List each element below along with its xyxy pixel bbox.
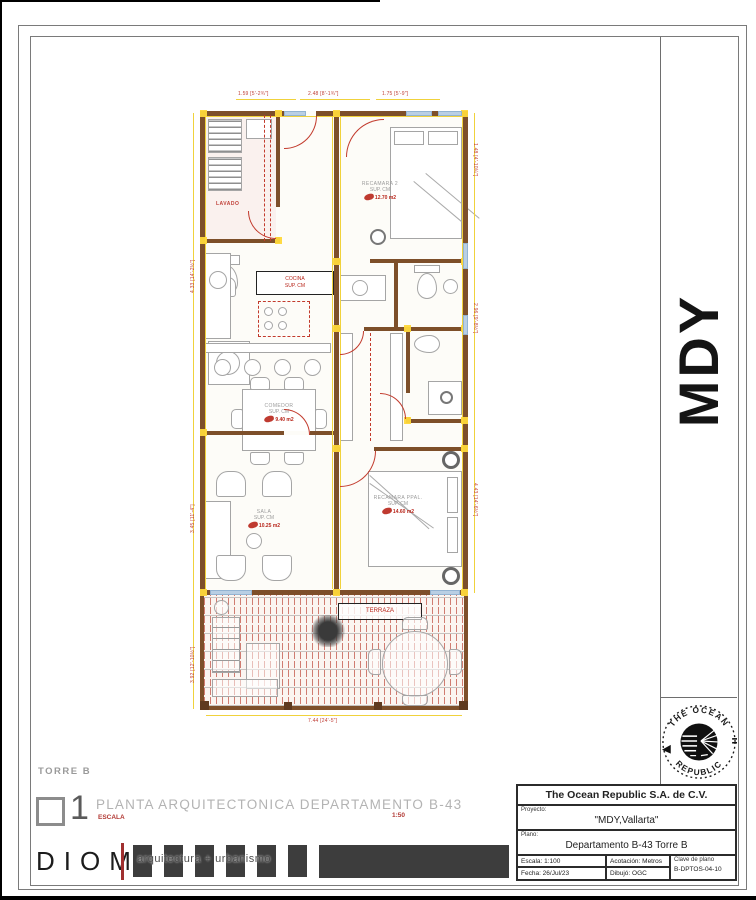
terrace-post — [284, 702, 292, 710]
yellow-joint — [200, 110, 207, 117]
window — [463, 315, 468, 335]
window — [406, 111, 432, 116]
fecha-cell: Fecha: 26/Jul/23 — [518, 868, 607, 879]
terrace-chair — [402, 617, 428, 630]
bath2b-tank — [414, 265, 440, 273]
clave-value: B-DPTOS-04-10 — [674, 866, 735, 873]
titleblock-proyecto-row: Proyecto: "MDY,Vallarta" — [518, 806, 735, 831]
plan-title: PLANTA ARQUITECTONICA DEPARTAMENTO B-43 — [96, 797, 462, 812]
door-gap — [276, 207, 280, 237]
titleblock-grid: Escala: 1:100 Fecha: 26/Jul/23 Acotación… — [518, 856, 735, 879]
dim-label: 4.43 [14'-6½"] — [472, 483, 478, 517]
title-block: The Ocean Republic S.A. de C.V. Proyecto… — [516, 784, 737, 881]
burner — [264, 307, 273, 316]
terrace-pot — [214, 600, 229, 615]
sliding-door — [210, 590, 252, 595]
washer — [208, 119, 242, 153]
wall-bath3-h — [406, 419, 468, 423]
proyecto-value: "MDY,Vallarta" — [518, 806, 735, 826]
yellow-line-inner-right — [462, 116, 463, 589]
sheet-number: 1 — [70, 789, 89, 828]
burner — [264, 321, 273, 330]
yellow-joint — [275, 110, 282, 117]
coffee-table — [246, 533, 262, 549]
wall-laundry-h — [200, 239, 280, 243]
terrace-post — [200, 701, 209, 710]
yellow-joint — [275, 237, 282, 244]
dim-label: 1.48 [4'-10¼"] — [472, 143, 478, 177]
escala-value: 1:50 — [392, 812, 405, 819]
yellow-joint — [333, 445, 340, 452]
nightstand-lamp — [442, 567, 460, 585]
bar-stool — [214, 359, 231, 376]
side-code-mdy: MDY — [666, 293, 731, 426]
ocean-republic-logo-icon: THE OCEAN REPUBLIC — [661, 699, 737, 783]
red-scribble-icon — [381, 507, 392, 515]
burner — [278, 307, 287, 316]
proyecto-label: Proyecto: — [521, 807, 546, 813]
titleblock-plano-row: Plano: Departamento B-43 Torre B — [518, 831, 735, 856]
dining-chair — [284, 452, 304, 465]
dining-chair — [250, 377, 270, 390]
bar-stool — [274, 359, 291, 376]
kitchen-note-box: COCINA SUP. CM — [256, 271, 334, 295]
yellow-joint — [404, 325, 411, 332]
titleblock-company-row: The Ocean Republic S.A. de C.V. — [518, 786, 735, 806]
dining-chair — [250, 452, 270, 465]
terrace-bench — [212, 679, 278, 697]
company-name: The Ocean Republic S.A. de C.V. — [546, 789, 708, 801]
yellow-line-inner-left — [205, 116, 206, 589]
yellow-joint — [333, 258, 340, 265]
laundry-counter — [246, 119, 272, 139]
floor-plan: COCINA SUP. CM COMEDOR SUP. CM 9.40 m2 S… — [200, 103, 470, 719]
red-scribble-icon — [247, 521, 258, 529]
sheet-number-box-icon — [36, 797, 65, 826]
bath2-sink — [352, 280, 368, 296]
yellow-joint — [200, 237, 207, 244]
page-edge-bottom — [0, 896, 756, 900]
wall-terrace-left — [200, 595, 204, 710]
plano-value: Departamento B-43 Torre B — [518, 831, 735, 851]
diom-wordmark: DIOM — [36, 846, 140, 877]
wall-bath1-h — [200, 431, 339, 435]
armchair — [216, 555, 246, 581]
yellow-joint — [333, 589, 340, 596]
terrace-label: TERRAZA — [339, 608, 421, 616]
dim-line-left — [193, 113, 194, 709]
red-dashed-line — [270, 115, 272, 241]
escala-label: ESCALA — [98, 814, 125, 821]
dim-label: 4.33 [14'-2½"] — [190, 259, 196, 293]
yellow-line-main-wall — [332, 116, 333, 589]
terrace-lounge — [212, 617, 240, 673]
burner — [278, 321, 287, 330]
closet — [390, 333, 403, 441]
diom-solid-block — [319, 845, 509, 878]
sliding-door — [430, 590, 460, 595]
terrace-chair — [402, 695, 428, 706]
room-tag-ppal: RECAMARA PPAL. SUP. CM 14.60 m2 — [346, 495, 450, 515]
dryer — [208, 157, 242, 191]
terrace-post — [459, 701, 468, 710]
dim-label: 3.45 [11'-4"] — [190, 504, 196, 533]
yellow-joint — [461, 110, 468, 117]
dim-label: 3.92 [12'-10½"] — [190, 646, 196, 683]
dim-line-top — [236, 99, 296, 100]
window — [438, 111, 462, 116]
room-label-lavado: LAVADO — [216, 201, 239, 207]
yellow-joint — [461, 589, 468, 596]
dim-label: 2.48 [8'-1¾"] — [308, 91, 339, 97]
room-tag-recamara2: RECAMARA 2 SUP. CM 12.70 m2 — [338, 181, 422, 201]
nightstand-lamp — [370, 229, 386, 245]
room-area: 14.60 m2 — [393, 509, 414, 515]
red-scribble-icon — [264, 415, 275, 423]
yellow-joint — [333, 110, 340, 117]
page-edge-top — [0, 0, 380, 2]
red-scribble-icon — [363, 193, 374, 201]
armchair — [262, 555, 292, 581]
wall-outer-right — [463, 111, 468, 595]
dibujo-cell: Dibujó: OGC — [607, 868, 671, 879]
yellow-joint — [461, 445, 468, 452]
escala-cell: Escala: 1:100 — [518, 856, 607, 868]
plano-label: Plano: — [521, 832, 538, 838]
logo-text-bottom: REPUBLIC — [674, 759, 724, 777]
yellow-joint — [200, 589, 207, 596]
pillow — [428, 131, 458, 145]
clave-label: Clave de plano — [674, 857, 735, 863]
plant — [310, 615, 346, 647]
terrace-round-table — [382, 631, 448, 697]
yellow-joint — [200, 429, 207, 436]
page-edge-left — [0, 0, 2, 900]
bath2b-toilet — [417, 273, 437, 299]
armchair — [216, 471, 246, 497]
side-code-wrap: MDY — [660, 230, 737, 490]
torre-label: TORRE B — [38, 766, 91, 777]
shower-drain — [440, 391, 453, 404]
dim-label: 2.96 [9'-8½"] — [472, 303, 478, 334]
svg-text:REPUBLIC: REPUBLIC — [674, 759, 724, 777]
kitchen-note-line2: SUP. CM — [257, 283, 333, 290]
dim-line-top — [300, 99, 370, 100]
kitchen-sink — [209, 271, 227, 289]
door-gap — [340, 259, 370, 263]
ocean-republic-logo-box: THE OCEAN REPUBLIC — [661, 697, 737, 785]
dining-chair — [315, 409, 327, 429]
dim-line-top — [376, 99, 440, 100]
bar-stool — [244, 359, 261, 376]
sheet-canvas: { "side": { "code": "MDY" }, "logo": { "… — [0, 0, 756, 900]
armchair — [262, 471, 292, 497]
closet-dashed-line — [370, 333, 372, 441]
wall-terrace-bottom — [200, 706, 468, 710]
dim-line-bottom — [206, 715, 462, 716]
acotacion-cell: Acotación: Metros — [607, 856, 671, 868]
wall-terrace-right — [464, 595, 468, 710]
yellow-joint — [333, 325, 340, 332]
room-area: 12.70 m2 — [375, 195, 396, 201]
kitchen-counter — [205, 253, 231, 339]
room-area: 10.25 m2 — [259, 523, 280, 529]
window — [463, 243, 468, 269]
wall-main-vertical — [334, 111, 339, 595]
yellow-joint — [461, 417, 468, 424]
terrace-post — [374, 702, 382, 710]
kitchen-bar — [205, 343, 331, 353]
diom-tagline: arquitectura + urbanismo — [137, 853, 271, 865]
bath2b-sink — [443, 279, 458, 294]
pillow — [394, 131, 424, 145]
red-dashed-line — [264, 115, 266, 241]
bath3-toilet — [414, 335, 440, 353]
dim-line-right — [474, 113, 475, 593]
terrace-chair — [368, 649, 381, 675]
dim-label: 1.75 [5'-9"] — [382, 91, 408, 97]
room-tag-sala: SALA SUP. CM 10.25 m2 — [234, 509, 294, 529]
dining-chair — [231, 409, 243, 429]
dining-chair — [284, 377, 304, 390]
pillow — [447, 517, 458, 553]
dim-label: 7.44 [24'-5"] — [308, 718, 337, 724]
door-gap — [406, 393, 410, 417]
dim-label: 1.59 [5'-2¾"] — [238, 91, 269, 97]
bar-stool — [304, 359, 321, 376]
wall-bath-mid-v — [394, 259, 398, 331]
terrace-chair — [449, 649, 462, 675]
diom-red-divider — [121, 843, 124, 880]
nightstand-lamp — [442, 451, 460, 469]
